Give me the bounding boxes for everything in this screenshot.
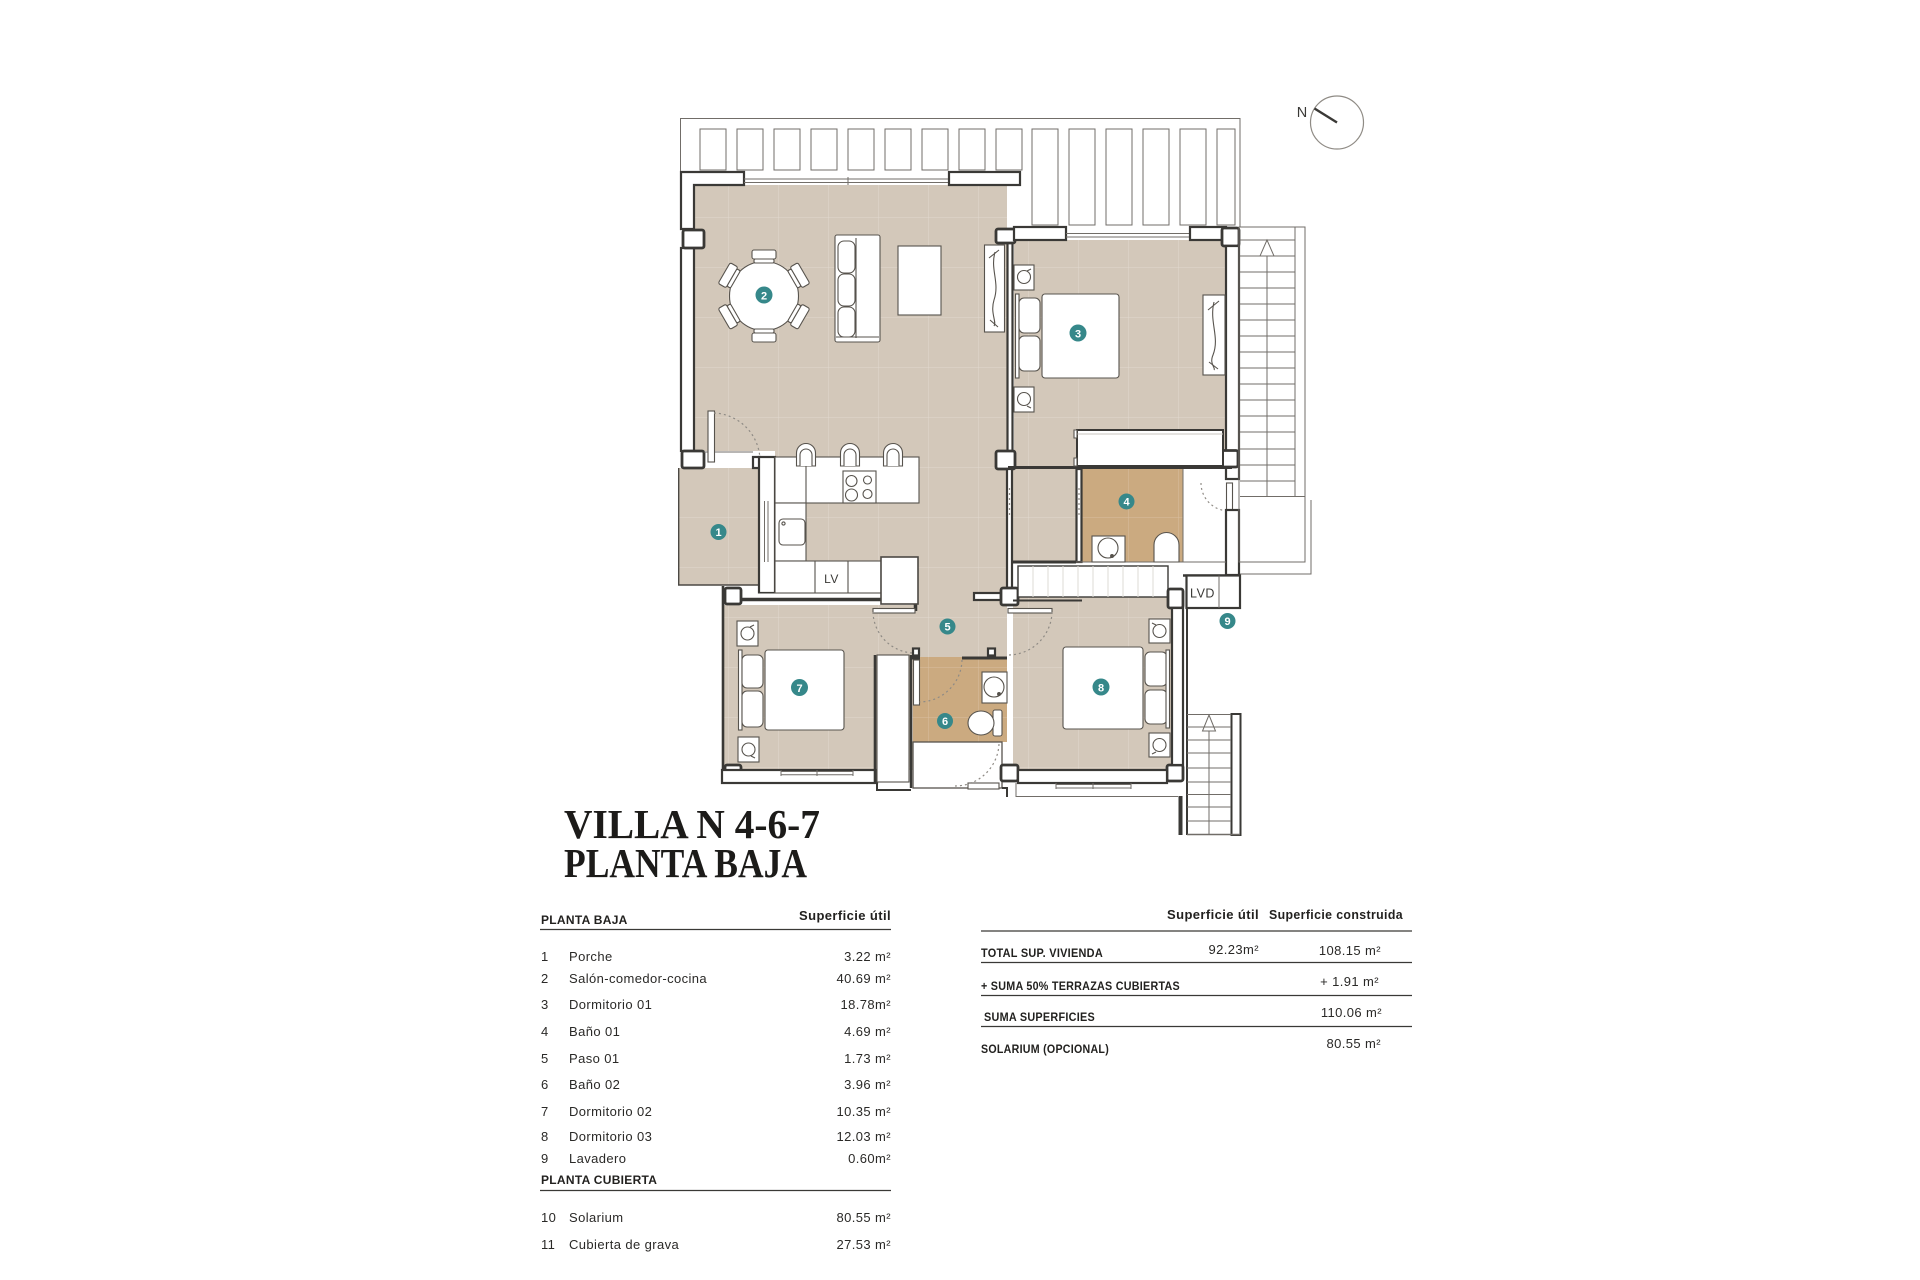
svg-text:Porche: Porche	[569, 949, 613, 964]
svg-text:110.06 m²: 110.06 m²	[1321, 1005, 1382, 1020]
svg-text:+ SUMA 50% TERRAZAS CUBIERTAS: + SUMA 50% TERRAZAS CUBIERTAS	[981, 979, 1180, 993]
svg-text:Baño 02: Baño 02	[569, 1077, 620, 1092]
svg-text:3.22 m²: 3.22 m²	[844, 949, 891, 964]
svg-text:Dormitorio 02: Dormitorio 02	[569, 1104, 652, 1119]
svg-text:PLANTA BAJA: PLANTA BAJA	[541, 913, 628, 927]
svg-text:1: 1	[541, 949, 549, 964]
svg-text:Solarium: Solarium	[569, 1210, 624, 1225]
svg-text:Salón-comedor-cocina: Salón-comedor-cocina	[569, 971, 707, 986]
svg-text:3: 3	[541, 997, 549, 1012]
svg-text:LV: LV	[824, 572, 839, 586]
svg-text:2: 2	[761, 291, 767, 303]
svg-text:12.03 m²: 12.03 m²	[836, 1129, 891, 1144]
svg-text:Dormitorio 03: Dormitorio 03	[569, 1129, 652, 1144]
svg-text:4: 4	[541, 1024, 549, 1039]
svg-text:2: 2	[541, 971, 549, 986]
svg-text:10: 10	[541, 1210, 556, 1225]
svg-text:LVD: LVD	[1190, 587, 1215, 601]
svg-text:7: 7	[796, 683, 802, 695]
svg-text:Dormitorio 01: Dormitorio 01	[569, 997, 652, 1012]
svg-text:Lavadero: Lavadero	[569, 1151, 626, 1166]
svg-text:18.78m²: 18.78m²	[841, 997, 892, 1012]
svg-text:6: 6	[942, 716, 948, 728]
svg-text:9: 9	[1224, 616, 1230, 628]
svg-text:6: 6	[541, 1077, 549, 1092]
svg-text:Superficie útil: Superficie útil	[799, 908, 891, 923]
svg-text:TOTAL SUP. VIVIENDA: TOTAL SUP. VIVIENDA	[981, 946, 1103, 960]
svg-text:27.53 m²: 27.53 m²	[836, 1237, 891, 1252]
svg-text:108.15 m²: 108.15 m²	[1319, 943, 1381, 958]
svg-text:SUMA SUPERFICIES: SUMA SUPERFICIES	[984, 1010, 1095, 1024]
svg-text:N: N	[1297, 105, 1307, 121]
svg-text:PLANTA CUBIERTA: PLANTA CUBIERTA	[541, 1173, 657, 1187]
svg-text:Paso 01: Paso 01	[569, 1051, 620, 1066]
svg-text:0.60m²: 0.60m²	[848, 1151, 891, 1166]
svg-text:Superficie útil: Superficie útil	[1167, 907, 1259, 922]
svg-text:+ 1.91 m²: + 1.91 m²	[1320, 974, 1379, 989]
svg-text:PLANTA BAJA: PLANTA BAJA	[564, 840, 807, 886]
svg-text:Cubierta de grava: Cubierta de grava	[569, 1237, 680, 1252]
svg-text:Baño 01: Baño 01	[569, 1024, 620, 1039]
svg-text:4: 4	[1123, 497, 1130, 509]
svg-text:8: 8	[1098, 683, 1104, 695]
svg-text:3.96 m²: 3.96 m²	[844, 1077, 891, 1092]
svg-text:10.35 m²: 10.35 m²	[836, 1104, 891, 1119]
svg-text:4.69 m²: 4.69 m²	[844, 1024, 891, 1039]
svg-text:Superficie construida: Superficie construida	[1269, 907, 1403, 922]
svg-text:1.73 m²: 1.73 m²	[844, 1051, 891, 1066]
svg-text:40.69 m²: 40.69 m²	[836, 971, 891, 986]
svg-text:SOLARIUM (OPCIONAL): SOLARIUM (OPCIONAL)	[981, 1042, 1109, 1056]
svg-text:11: 11	[541, 1237, 555, 1252]
svg-text:9: 9	[541, 1151, 549, 1166]
svg-text:80.55 m²: 80.55 m²	[1326, 1036, 1381, 1051]
svg-text:8: 8	[541, 1129, 549, 1144]
svg-text:80.55 m²: 80.55 m²	[836, 1210, 891, 1225]
svg-text:92.23m²: 92.23m²	[1209, 942, 1260, 957]
svg-text:1: 1	[715, 527, 721, 539]
svg-text:5: 5	[944, 622, 950, 634]
svg-text:5: 5	[541, 1051, 549, 1066]
svg-text:7: 7	[541, 1104, 549, 1119]
svg-text:3: 3	[1075, 329, 1081, 341]
